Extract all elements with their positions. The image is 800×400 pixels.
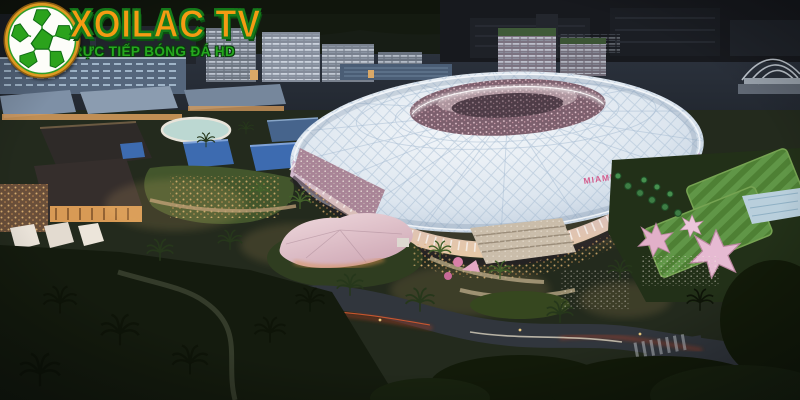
logo-title: XOILAC TV bbox=[70, 6, 261, 43]
stadium-render-image: MIAMI FREEDOM PARK bbox=[0, 0, 800, 400]
logo-subtitle: TRỰC TIẾP BÓNG ĐÁ HD bbox=[64, 44, 287, 59]
watermark-logo: XOILAC TV TRỰC TIẾP BÓNG ĐÁ HD bbox=[2, 0, 287, 80]
